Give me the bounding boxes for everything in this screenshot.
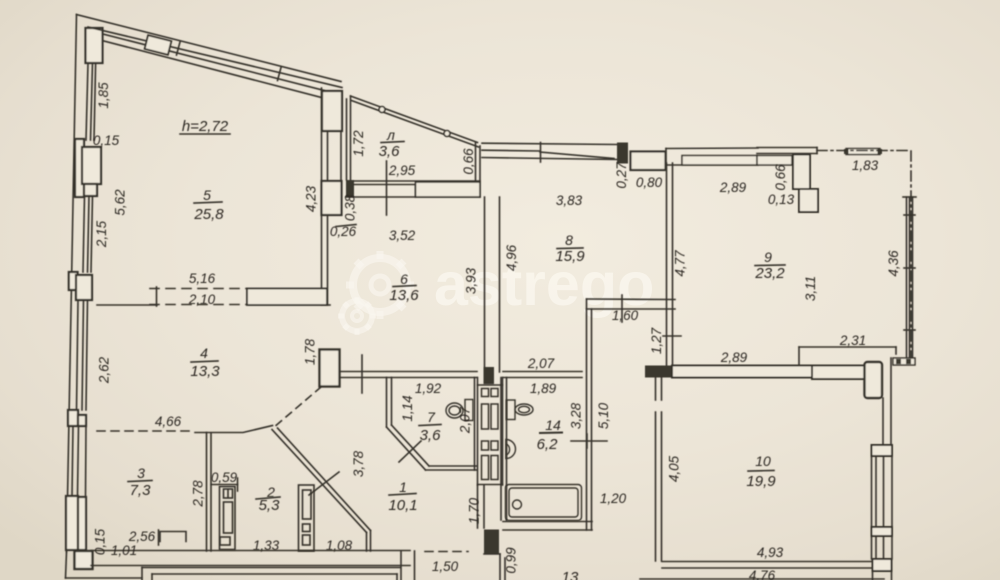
svg-text:3,93: 3,93 [464, 267, 479, 294]
svg-text:1,60: 1,60 [612, 308, 639, 323]
svg-text:1,20: 1,20 [600, 491, 627, 506]
svg-text:15,9: 15,9 [555, 248, 585, 265]
svg-text:0,26: 0,26 [330, 224, 357, 239]
svg-text:2,10: 2,10 [188, 292, 216, 307]
svg-text:0,13: 0,13 [768, 192, 795, 207]
svg-text:1,70: 1,70 [467, 497, 482, 524]
svg-text:3,83: 3,83 [556, 193, 583, 208]
svg-text:13,6: 13,6 [389, 287, 419, 304]
svg-text:3,11: 3,11 [803, 276, 818, 301]
svg-text:1,50: 1,50 [432, 559, 459, 574]
svg-text:3,78: 3,78 [351, 450, 366, 477]
svg-text:1,72: 1,72 [351, 130, 366, 157]
svg-text:8: 8 [565, 232, 573, 248]
svg-text:1: 1 [399, 479, 407, 495]
svg-text:0,59: 0,59 [211, 470, 238, 485]
svg-text:2,89: 2,89 [719, 180, 747, 195]
svg-text:10,1: 10,1 [388, 497, 417, 514]
svg-text:4,66: 4,66 [155, 414, 182, 429]
svg-text:1,14: 1,14 [400, 395, 415, 421]
svg-text:7: 7 [427, 409, 436, 425]
svg-text:13,3: 13,3 [190, 363, 220, 380]
svg-text:5,10: 5,10 [596, 402, 611, 429]
svg-text:14: 14 [545, 417, 561, 433]
svg-text:2,56: 2,56 [128, 529, 156, 544]
svg-text:1,83: 1,83 [852, 158, 879, 173]
svg-text:0,66: 0,66 [773, 164, 788, 191]
svg-text:25,8: 25,8 [193, 206, 224, 223]
svg-text:4,93: 4,93 [757, 545, 784, 560]
svg-text:6,2: 6,2 [537, 436, 559, 453]
svg-text:4: 4 [200, 345, 208, 361]
svg-text:1,27: 1,27 [649, 327, 664, 354]
svg-text:1,92: 1,92 [415, 381, 442, 396]
svg-text:1,01: 1,01 [111, 543, 137, 558]
svg-text:5,16: 5,16 [189, 271, 216, 286]
svg-text:19,9: 19,9 [746, 473, 776, 490]
svg-text:h=2,72: h=2,72 [182, 118, 229, 135]
svg-text:4,76: 4,76 [749, 568, 776, 580]
svg-text:0,66: 0,66 [461, 148, 476, 175]
svg-text:3,6: 3,6 [379, 143, 401, 160]
svg-text:4,23: 4,23 [304, 185, 319, 212]
svg-text:3,28: 3,28 [569, 402, 584, 429]
svg-text:4,05: 4,05 [667, 455, 682, 482]
svg-text:2,07: 2,07 [458, 406, 473, 434]
svg-text:4,77: 4,77 [673, 250, 688, 277]
svg-text:0,99: 0,99 [504, 547, 519, 574]
svg-text:13: 13 [562, 569, 579, 580]
svg-text:0,15: 0,15 [93, 133, 120, 148]
svg-text:1,33: 1,33 [253, 538, 280, 553]
svg-text:4,96: 4,96 [504, 244, 519, 271]
svg-text:0,27: 0,27 [614, 162, 629, 189]
svg-text:л: л [386, 127, 395, 143]
svg-text:2,15: 2,15 [94, 220, 109, 248]
svg-text:3,52: 3,52 [389, 228, 416, 243]
svg-text:9: 9 [764, 249, 772, 265]
svg-text:3: 3 [137, 465, 145, 481]
svg-text:7,3: 7,3 [130, 482, 152, 499]
svg-text:6: 6 [400, 271, 408, 287]
svg-text:5,3: 5,3 [259, 497, 281, 514]
svg-text:2,89: 2,89 [720, 350, 748, 365]
svg-text:1,89: 1,89 [530, 381, 557, 396]
svg-text:10: 10 [755, 453, 771, 469]
svg-text:4,36: 4,36 [886, 250, 901, 277]
svg-text:2,78: 2,78 [191, 480, 206, 508]
svg-text:3,6: 3,6 [420, 427, 442, 444]
svg-text:1,78: 1,78 [303, 338, 318, 365]
svg-text:23,2: 23,2 [754, 265, 785, 282]
svg-text:2,31: 2,31 [839, 333, 866, 348]
svg-text:5: 5 [203, 187, 211, 203]
svg-text:1,08: 1,08 [326, 538, 353, 553]
svg-text:2,07: 2,07 [527, 356, 555, 371]
svg-text:1,85: 1,85 [96, 82, 111, 109]
svg-text:5,62: 5,62 [113, 189, 128, 216]
svg-text:0,15: 0,15 [93, 528, 108, 555]
svg-text:0,38: 0,38 [343, 194, 358, 221]
svg-text:2,95: 2,95 [388, 163, 416, 178]
svg-text:2,62: 2,62 [97, 356, 112, 384]
svg-text:0,80: 0,80 [636, 175, 663, 190]
